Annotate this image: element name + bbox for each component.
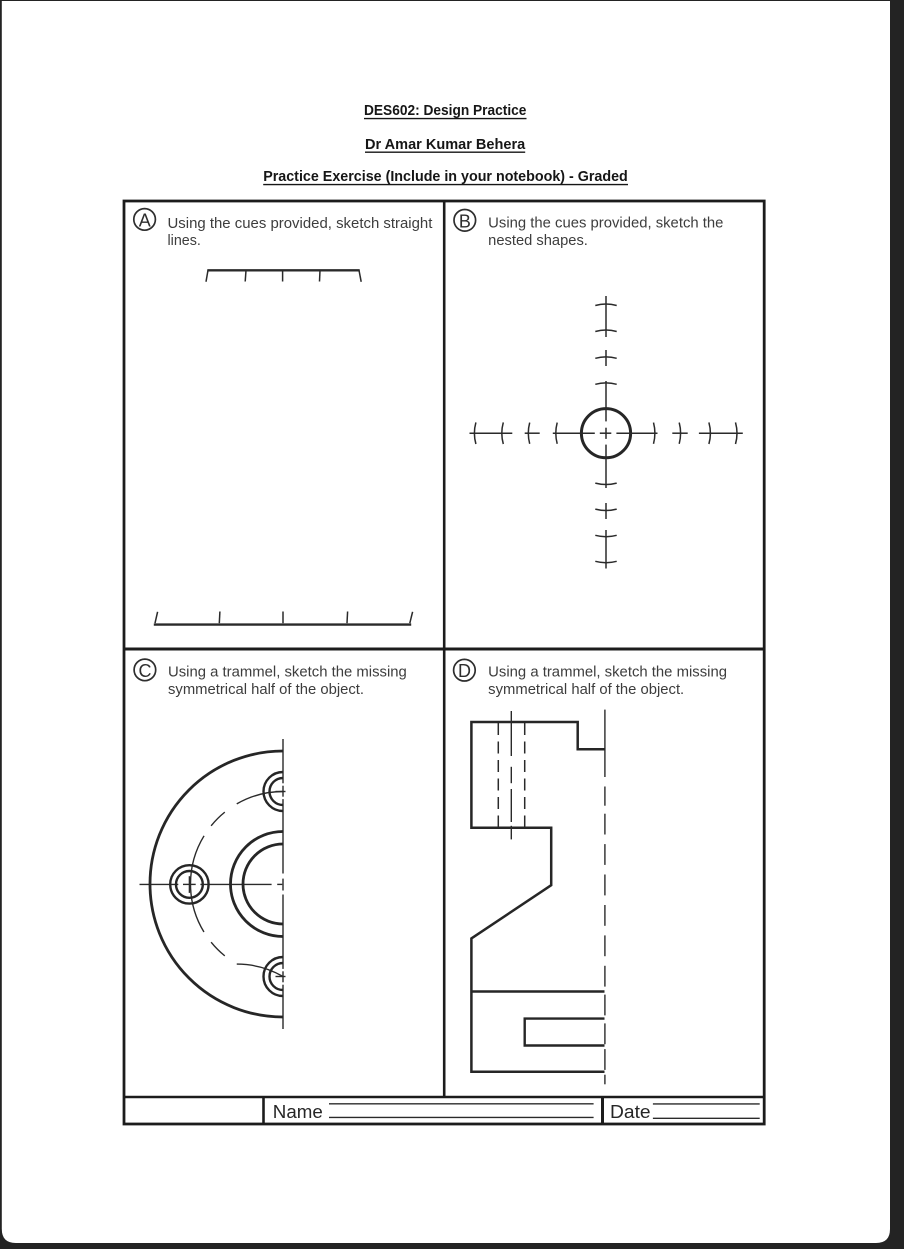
svg-text:D: D <box>458 661 471 681</box>
svg-text:Using the cues provided, sketc: Using the cues provided, sketch straight <box>168 216 433 232</box>
svg-text:symmetrical half of the object: symmetrical half of the object. <box>488 682 684 698</box>
svg-text:nested shapes.: nested shapes. <box>488 233 588 249</box>
svg-text:DES602: Design Practice: DES602: Design Practice <box>364 102 526 119</box>
svg-text:Using the cues provided, sketc: Using the cues provided, sketch the <box>488 216 723 232</box>
svg-text:Practice Exercise (Include in: Practice Exercise (Include in your noteb… <box>263 168 628 185</box>
svg-text:Name: Name <box>273 1101 323 1122</box>
svg-text:Dr Amar Kumar Behera: Dr Amar Kumar Behera <box>365 136 526 153</box>
svg-text:Using a trammel, sketch the mi: Using a trammel, sketch the missing <box>168 664 407 680</box>
svg-text:lines.: lines. <box>168 233 201 249</box>
svg-text:B: B <box>459 211 471 231</box>
svg-text:A: A <box>139 210 151 230</box>
svg-text:Using a trammel, sketch the mi: Using a trammel, sketch the missing <box>488 664 727 680</box>
svg-text:Date: Date <box>610 1101 651 1122</box>
svg-text:C: C <box>139 661 152 681</box>
svg-text:symmetrical half of the object: symmetrical half of the object. <box>168 682 364 698</box>
